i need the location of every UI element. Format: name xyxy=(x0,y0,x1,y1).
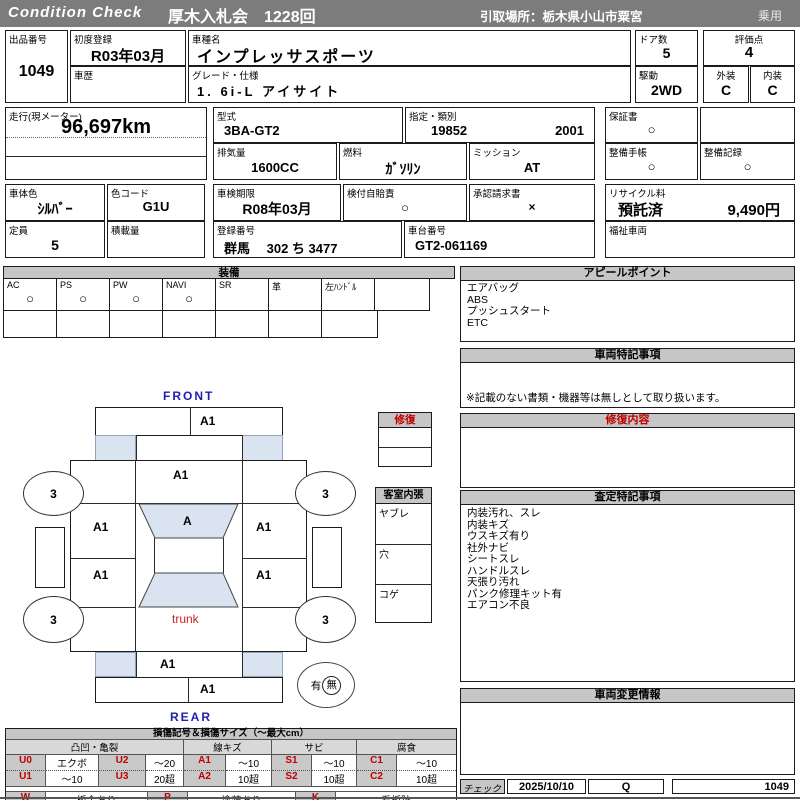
legend-size: 10超 xyxy=(226,771,272,787)
inspection-expiry-value: R08年03月 xyxy=(214,199,340,219)
left-door-mark: A1 xyxy=(93,568,108,582)
plate-number-value: 群馬 302 ち 3477 xyxy=(224,238,337,257)
grade-label: グレード・仕様 xyxy=(192,68,259,82)
rear-panel-right-edge xyxy=(242,652,243,677)
damage-legend-row-u0: U0 エクボ U2 ～20 A1 ～10 S1 ～10 C1 ～10 xyxy=(6,755,456,771)
equipment-cell-ps: PS ○ xyxy=(56,278,110,311)
appeal-panel-title: アピールポイント xyxy=(461,267,794,281)
grade-box: グレード・仕様 1. 6i-L アイサイト xyxy=(188,66,631,103)
header-bar: Condition Check 厚木入札会 1228回 引取場所：栃木県小山市粟… xyxy=(0,0,800,27)
assessment-item: 天張り汚れ xyxy=(467,577,562,589)
roof-left-edge xyxy=(154,538,155,573)
interior-grade-value: C xyxy=(751,82,794,98)
legend-code: S1 xyxy=(272,755,312,771)
insurance-mark: ○ xyxy=(344,200,466,215)
front-nose-right-edge xyxy=(242,435,243,461)
diagram-rear-label: REAR xyxy=(170,710,212,724)
assessment-panel: 査定特記事項 内装汚れ、スレ 内装キズ ウスキズ有り 社外ナビ シートスレ ハン… xyxy=(460,490,795,682)
service-record-label: 整備記録 xyxy=(704,145,742,159)
body-column-right xyxy=(242,460,243,652)
rear-window-shape xyxy=(137,571,241,608)
displacement-label: 排気量 xyxy=(217,145,246,159)
approval-request-box: 承認請求書 × xyxy=(469,184,595,221)
vehicle-notes-footer: ※記載のない書類・機器等は無しとして取り扱います。 xyxy=(466,390,725,405)
vin-value: GT2-061169 xyxy=(415,238,487,253)
equipment-cell-ac: AC ○ xyxy=(3,278,57,311)
legend-group-rust: サビ xyxy=(272,740,357,755)
legend-size: ～10 xyxy=(312,755,357,771)
history-box: 車歴 xyxy=(70,66,186,103)
plate-number-label: 登録番号 xyxy=(217,223,255,237)
equipment-cell-navi: NAVI ○ xyxy=(162,278,216,311)
damage-legend-title: 損傷記号＆損傷サイズ（～最大cm） xyxy=(6,729,456,740)
rear-bumper-divider xyxy=(188,677,189,703)
equipment-mark-ps: ○ xyxy=(57,291,109,306)
presence-yes-label: 有 xyxy=(311,678,322,693)
presence-ellipse: 有 無 xyxy=(297,662,355,708)
legend-group-dents: 凸凹・亀裂 xyxy=(6,740,184,755)
plate-number-box: 登録番号 群馬 302 ち 3477 xyxy=(213,221,402,258)
cabin-lining-tear-label: ヤブレ xyxy=(379,505,409,520)
capacity-value: 5 xyxy=(6,237,104,253)
warranty-label: 保証書 xyxy=(609,109,638,123)
equipment-empty-row-6 xyxy=(268,310,322,338)
legend-size: 20超 xyxy=(146,771,184,787)
score-value: 4 xyxy=(704,44,794,61)
auction-title: 厚木入札会 1228回 xyxy=(168,3,316,27)
first-registration-value: R03年03月 xyxy=(71,45,185,66)
legend-size: ～10 xyxy=(46,771,99,787)
cabin-lining-divider-2 xyxy=(376,584,431,585)
front-left-corner-shade xyxy=(95,435,136,461)
equipment-label-navi: NAVI xyxy=(166,280,186,290)
repair-flag-box: 修復 xyxy=(378,412,432,467)
repair-details-panel: 修復内容 xyxy=(460,413,795,488)
service-book-box: 整備手帳 ○ xyxy=(605,143,698,180)
vin-label: 車台番号 xyxy=(408,223,446,237)
odometer-box: 走行(現メーター) 96,697km xyxy=(5,107,207,180)
equipment-mark-pw: ○ xyxy=(110,291,162,306)
fuel-value: ｶﾞｿﾘﾝ xyxy=(340,159,466,179)
exterior-grade-value: C xyxy=(704,82,748,98)
model-box: 車種名 インプレッサスポーツ xyxy=(188,30,631,66)
capacity-box: 定員 5 xyxy=(5,221,105,258)
vehicle-category: 乗用 xyxy=(758,7,782,24)
left-door-top-line xyxy=(70,558,136,559)
assessment-item: シートスレ xyxy=(467,554,562,566)
rear-left-corner-shade xyxy=(95,652,136,677)
exterior-grade-label: 外装 xyxy=(704,68,748,82)
welfare-vehicle-label: 福祉車両 xyxy=(609,223,647,237)
service-book-label: 整備手帳 xyxy=(609,145,647,159)
legend-code: U2 xyxy=(99,755,146,771)
equipment-label-leather: 革 xyxy=(272,280,281,293)
interior-grade-box: 内装 C xyxy=(750,66,795,103)
odometer-divider-dotted xyxy=(6,137,206,138)
damage-legend-table: 損傷記号＆損傷サイズ（～最大cm） 凸凹・亀裂 線キズ サビ 腐食 U0 エクボ… xyxy=(5,728,457,800)
check-label: チェック xyxy=(463,781,501,795)
class-label: 指定・類別 xyxy=(409,109,457,123)
wheel-front-right: 3 xyxy=(295,471,356,516)
front-left-fender-mark: A1 xyxy=(93,520,108,534)
legend-size: ～10 xyxy=(226,755,272,771)
body-color-label: 車体色 xyxy=(9,186,38,200)
equipment-empty-row-7 xyxy=(321,310,378,338)
wheel-front-left-mark: 3 xyxy=(50,487,57,501)
assessment-title: 査定特記事項 xyxy=(461,491,794,505)
appeal-item: ETC xyxy=(467,318,551,330)
rear-right-corner-shade xyxy=(242,652,283,677)
equipment-cell-lhd: 左ﾊﾝﾄﾞﾙ xyxy=(321,278,375,311)
odometer-divider-solid xyxy=(6,156,206,157)
legend-code: U3 xyxy=(99,771,146,787)
score-box: 評価点 4 xyxy=(703,30,795,66)
recycle-fee-box: リサイクル料 預託済 9,490円 xyxy=(605,184,795,221)
class-box: 指定・類別 19852 2001 xyxy=(405,107,595,143)
service-record-mark: ○ xyxy=(701,159,794,174)
cabin-lining-box: 客室内張 ヤブレ 穴 コゲ xyxy=(375,487,432,623)
first-registration-box: 初度登録 R03年03月 xyxy=(70,30,186,66)
model-value: インプレッサスポーツ xyxy=(197,43,376,67)
assessment-item: エアコン不良 xyxy=(467,600,562,612)
vehicle-notes-title: 車両特記事項 xyxy=(461,349,794,363)
recycle-status: 預託済 xyxy=(618,199,663,220)
wheel-rear-left: 3 xyxy=(23,596,84,643)
legend-size: ～10 xyxy=(397,755,456,771)
welfare-vehicle-box: 福祉車両 xyxy=(605,221,795,258)
inspector-value: Q xyxy=(589,781,663,793)
load-capacity-label: 積載量 xyxy=(111,223,140,237)
class-value-1: 19852 xyxy=(431,123,467,138)
right-quarter-line xyxy=(242,607,307,608)
color-code-box: 色コード G1U xyxy=(107,184,205,221)
appeal-item: エアバッグ xyxy=(467,283,551,295)
rear-panel-mark: A1 xyxy=(160,657,175,671)
left-rocker-panel xyxy=(35,527,65,588)
wheel-rear-right-mark: 3 xyxy=(322,613,329,627)
roof-right-edge xyxy=(223,538,224,573)
grade-value: 1. 6i-L アイサイト xyxy=(197,81,341,100)
lot-number-box: 出品番号 1049 xyxy=(5,30,68,103)
footer-lot-box: 1049 xyxy=(672,779,795,794)
legend-group-scratches: 線キズ xyxy=(184,740,272,755)
wheel-rear-left-mark: 3 xyxy=(50,613,57,627)
wheel-front-right-mark: 3 xyxy=(322,487,329,501)
insurance-box: 検付自賠責 ○ xyxy=(343,184,467,221)
right-door-top-line xyxy=(242,558,307,559)
insurance-label: 検付自賠責 xyxy=(347,186,395,200)
first-registration-label: 初度登録 xyxy=(74,32,112,46)
equipment-empty-row-1 xyxy=(3,310,57,338)
vehicle-change-panel: 車両変更情報 xyxy=(460,688,795,775)
auction-condition-sheet: Condition Check 厚木入札会 1228回 引取場所：栃木県小山市粟… xyxy=(0,0,800,800)
equipment-label-lhd: 左ﾊﾝﾄﾞﾙ xyxy=(325,280,357,293)
repair-flag-divider xyxy=(379,447,431,448)
presence-no-circled: 無 xyxy=(322,676,341,695)
front-right-corner-shade xyxy=(242,435,283,461)
front-right-fender-mark: A1 xyxy=(256,520,271,534)
equipment-mark-ac: ○ xyxy=(4,291,56,306)
windshield-mark: A xyxy=(183,514,192,528)
equipment-label-sr: SR xyxy=(219,280,232,290)
odometer-value: 96,697km xyxy=(6,116,206,139)
inspector-box: Q xyxy=(588,779,664,794)
displacement-box: 排気量 1600CC xyxy=(213,143,337,180)
diagram-front-label: FRONT xyxy=(163,389,214,403)
equipment-empty-row-4 xyxy=(162,310,216,338)
equipment-cell-sr: SR xyxy=(215,278,269,311)
wheel-rear-right: 3 xyxy=(295,596,356,643)
equipment-mark-navi: ○ xyxy=(163,291,215,306)
doors-label: ドア数 xyxy=(639,32,668,46)
interior-grade-label: 内装 xyxy=(751,68,794,82)
body-column-left xyxy=(135,460,136,652)
legend-code: U1 xyxy=(6,771,46,787)
type-code-value: 3BA-GT2 xyxy=(224,123,280,138)
cabin-lining-title: 客室内張 xyxy=(376,488,431,504)
fuel-box: 燃料 ｶﾞｿﾘﾝ xyxy=(339,143,467,180)
service-record-box: 整備記録 ○ xyxy=(700,143,795,180)
color-code-value: G1U xyxy=(108,199,204,214)
assessment-item: ウスキズ有り xyxy=(467,531,562,543)
front-bumper-divider xyxy=(190,407,191,436)
equipment-label-ps: PS xyxy=(60,280,72,290)
check-label-box: チェック xyxy=(460,779,505,794)
hood-mark: A1 xyxy=(173,468,188,482)
drive-value: 2WD xyxy=(636,82,697,98)
front-nose-left-edge xyxy=(136,435,137,461)
cabin-lining-divider-1 xyxy=(376,544,431,545)
fuel-label: 燃料 xyxy=(343,145,362,159)
legend-size: ～20 xyxy=(146,755,184,771)
legend-code: A2 xyxy=(184,771,226,787)
right-door-mark: A1 xyxy=(256,568,271,582)
color-code-label: 色コード xyxy=(111,186,149,200)
type-code-label: 型式 xyxy=(217,109,236,123)
transmission-box: ミッション AT xyxy=(469,143,595,180)
drive-box: 駆動 2WD xyxy=(635,66,698,103)
check-date-box: 2025/10/10 xyxy=(507,779,586,794)
lot-number-value: 1049 xyxy=(6,63,67,81)
drive-label: 駆動 xyxy=(639,68,658,82)
service-book-mark: ○ xyxy=(606,159,697,174)
legend-code: S2 xyxy=(272,771,312,787)
type-code-box: 型式 3BA-GT2 xyxy=(213,107,403,143)
legend-code: C1 xyxy=(357,755,397,771)
transmission-label: ミッション xyxy=(473,145,521,159)
body-color-box: 車体色 ｼﾙﾊﾞｰ xyxy=(5,184,105,221)
wheel-front-left: 3 xyxy=(23,471,84,516)
appeal-item: プッシュスタート xyxy=(467,306,551,318)
doors-value: 5 xyxy=(636,45,697,61)
displacement-value: 1600CC xyxy=(214,160,336,175)
body-color-value: ｼﾙﾊﾞｰ xyxy=(6,199,104,219)
warranty-mark: ○ xyxy=(606,122,697,137)
front-bumper xyxy=(95,407,283,436)
equipment-empty-row-3 xyxy=(109,310,163,338)
lot-number-label: 出品番号 xyxy=(9,32,47,46)
repair-details-title: 修復内容 xyxy=(461,414,794,428)
equipment-label-ac: AC xyxy=(7,280,20,290)
vin-box: 車台番号 GT2-061169 xyxy=(404,221,595,258)
repair-flag-title: 修復 xyxy=(379,413,431,428)
recycle-fee-value: 9,490円 xyxy=(727,199,780,220)
load-capacity-box: 積載量 xyxy=(107,221,205,258)
legend-size: 10超 xyxy=(397,771,456,787)
vehicle-notes-panel: 車両特記事項 ※記載のない書類・機器等は無しとして取り扱います。 xyxy=(460,348,795,408)
rear-bumper xyxy=(95,677,283,703)
capacity-label: 定員 xyxy=(9,223,28,237)
history-label: 車歴 xyxy=(74,68,93,82)
legend-code: C2 xyxy=(357,771,397,787)
brand-logo: Condition Check xyxy=(8,4,142,21)
doors-box: ドア数 5 xyxy=(635,30,698,66)
approval-request-label: 承認請求書 xyxy=(473,186,521,200)
transmission-value: AT xyxy=(470,160,594,175)
trunk-label: trunk xyxy=(172,612,199,626)
equipment-cell-pw: PW ○ xyxy=(109,278,163,311)
exterior-grade-box: 外装 C xyxy=(703,66,749,103)
damage-legend-groups: 凸凹・亀裂 線キズ サビ 腐食 xyxy=(6,740,456,755)
class-value-2: 2001 xyxy=(555,123,584,138)
recycle-fee-label: リサイクル料 xyxy=(609,186,666,200)
equipment-label-pw: PW xyxy=(113,280,128,290)
legend-group-corrosion: 腐食 xyxy=(357,740,456,755)
legend-size: 10超 xyxy=(312,771,357,787)
front-bumper-mark: A1 xyxy=(200,414,215,428)
inspection-expiry-box: 車検期限 R08年03月 xyxy=(213,184,341,221)
vehicle-change-title: 車両変更情報 xyxy=(461,689,794,703)
warranty-box: 保証書 ○ xyxy=(605,107,698,143)
empty-doc-box xyxy=(700,107,795,143)
damage-legend-row-u1: U1 ～10 U3 20超 A2 10超 S2 10超 C2 10超 xyxy=(6,771,456,787)
right-rocker-panel xyxy=(312,527,342,588)
check-date-value: 2025/10/10 xyxy=(508,781,585,793)
assessment-item: 内装汚れ、スレ xyxy=(467,508,562,520)
pickup-location: 引取場所：栃木県小山市粟宮 xyxy=(480,6,643,25)
legend-code: A1 xyxy=(184,755,226,771)
legend-size: エクボ xyxy=(46,755,99,771)
rear-bumper-mark: A1 xyxy=(200,682,215,696)
cabin-lining-hole-label: 穴 xyxy=(379,546,389,561)
equipment-empty-row-2 xyxy=(56,310,110,338)
appeal-panel: アピールポイント エアバッグ ABS プッシュスタート ETC xyxy=(460,266,795,342)
legend-code: U0 xyxy=(6,755,46,771)
inspection-expiry-label: 車検期限 xyxy=(217,186,255,200)
rear-panel-left-edge xyxy=(136,652,137,677)
page-bottom-rule xyxy=(0,797,800,799)
equipment-cell-leather: 革 xyxy=(268,278,322,311)
footer-lot-value: 1049 xyxy=(765,781,789,793)
equipment-cell-extra xyxy=(374,278,430,311)
cabin-lining-burn-label: コゲ xyxy=(379,586,399,601)
approval-request-mark: × xyxy=(470,200,594,214)
equipment-empty-row-5 xyxy=(215,310,269,338)
